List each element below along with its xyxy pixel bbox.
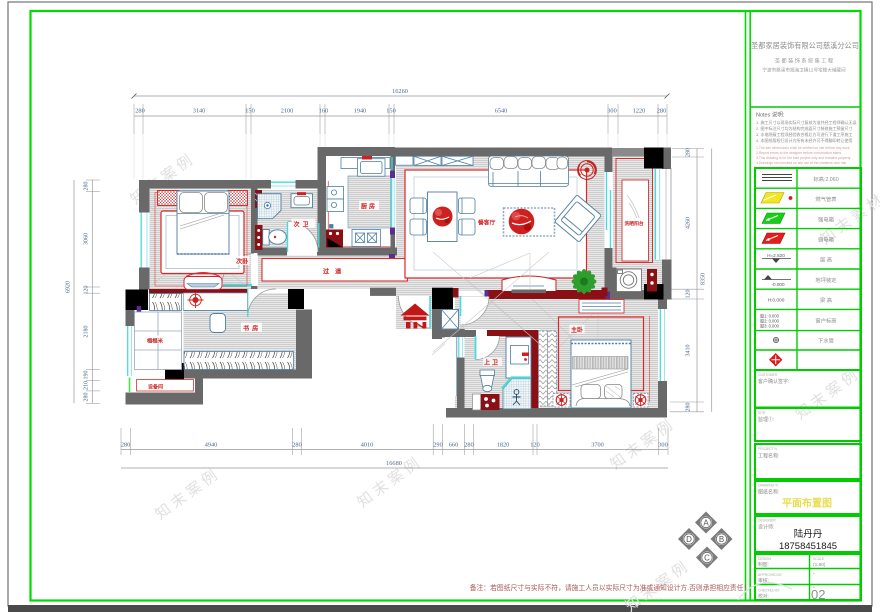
svg-text:CUSTOMER: CUSTOMER — [758, 373, 778, 377]
svg-text:D: D — [686, 535, 692, 544]
svg-text:工程名称:: 工程名称: — [758, 453, 779, 460]
svg-text:餐客厅: 餐客厅 — [477, 219, 496, 227]
svg-text:H:0.000: H:0.000 — [768, 298, 785, 304]
svg-text:6540: 6540 — [495, 108, 508, 115]
svg-text:3410: 3410 — [686, 345, 692, 357]
svg-text:4. 本图纸版权归设计方所有未经许可不得翻印转让使用: 4. 本图纸版权归设计方所有未经许可不得翻印转让使用 — [756, 137, 852, 143]
svg-text:1. 施工尺寸以现场实际尺寸复核为准并经工程师确认无误: 1. 施工尺寸以现场实际尺寸复核为准并经工程师确认无误 — [756, 119, 856, 125]
svg-text:洗晒阳台: 洗晒阳台 — [625, 220, 644, 227]
svg-text:设计师:: 设计师: — [758, 524, 774, 531]
svg-text:窗户标高: 窗户标高 — [815, 317, 836, 325]
svg-text:SCALE: SCALE — [813, 557, 825, 561]
svg-text:2180: 2180 — [84, 326, 90, 338]
svg-text:150: 150 — [386, 108, 395, 115]
svg-text:2. 图中标注尺寸均为结构完成面尺寸装修施工预留尺寸: 2. 图中标注尺寸均为结构完成面尺寸装修施工预留尺寸 — [756, 125, 852, 131]
svg-text:DRAWING TI.: DRAWING TI. — [758, 484, 779, 488]
svg-text:3060: 3060 — [84, 233, 90, 245]
svg-text:1.The site dimensions shall be: 1.The site dimensions shall be verified … — [756, 146, 850, 150]
svg-text:B: B — [719, 535, 724, 544]
svg-text:16260: 16260 — [392, 88, 408, 95]
svg-text:1940: 1940 — [354, 108, 367, 115]
svg-text:2100: 2100 — [281, 108, 294, 115]
svg-text:地坪装定: 地坪装定 — [815, 276, 837, 284]
svg-text:次卧: 次卧 — [236, 258, 249, 266]
svg-text:榻榻米: 榻榻米 — [146, 337, 164, 345]
svg-text:6920: 6920 — [66, 281, 72, 293]
svg-text:APPROVED BY: APPROVED BY — [758, 573, 783, 577]
svg-text:16680: 16680 — [386, 460, 402, 467]
svg-text:4.Drawings not checked on site: 4.Drawings not checked on site are at th… — [756, 161, 846, 165]
svg-text:制图:: 制图: — [758, 561, 769, 568]
svg-text:厨房: 厨房 — [361, 203, 377, 211]
svg-text:18758451845: 18758451845 — [779, 541, 837, 552]
svg-text:DESIGNER: DESIGNER — [758, 519, 776, 523]
svg-text:280: 280 — [84, 182, 90, 191]
svg-text:A: A — [703, 519, 709, 528]
svg-text:210: 210 — [84, 381, 90, 390]
svg-text:设备间: 设备间 — [148, 384, 163, 391]
svg-text:3140: 3140 — [193, 108, 206, 115]
svg-text:660: 660 — [449, 442, 458, 449]
svg-text:300: 300 — [607, 108, 616, 115]
svg-text:燃气管表: 燃气管表 — [815, 195, 837, 203]
svg-text:300: 300 — [658, 442, 667, 449]
svg-text:陆丹丹: 陆丹丹 — [794, 528, 823, 540]
svg-text:280: 280 — [121, 442, 130, 449]
svg-text:宁波市慈溪市观海卫镇12号宅楼大储藏间: 宁波市慈溪市观海卫镇12号宅楼大储藏间 — [762, 67, 846, 74]
svg-text:SITE: SITE — [758, 411, 766, 415]
svg-text:圣 都 装 饰 系 统 集 工 程: 圣 都 装 饰 系 统 集 工 程 — [775, 57, 833, 65]
svg-text:客户确认签字:: 客户确认签字: — [758, 378, 789, 385]
svg-text:280: 280 — [686, 148, 692, 157]
svg-text:3700: 3700 — [591, 442, 604, 449]
svg-text:Notes 说明:: Notes 说明: — [756, 111, 785, 119]
svg-text:1220: 1220 — [633, 108, 646, 115]
svg-text:梁 高: 梁 高 — [820, 296, 832, 304]
svg-text:备注：若图纸尺寸与实际不符，请施工人员以实际尺寸为准或通知设: 备注：若图纸尺寸与实际不符，请施工人员以实际尺寸为准或通知设计方.否则承担相应责… — [470, 583, 751, 592]
svg-text:280: 280 — [292, 442, 301, 449]
svg-text:层 高: 层 高 — [820, 256, 832, 264]
svg-text:圣都家居装饰有限公司慈溪分公司: 圣都家居装饰有限公司慈溪分公司 — [751, 41, 859, 50]
svg-text:8350: 8350 — [701, 273, 707, 285]
svg-text:CHECKED BY: CHECKED BY — [758, 589, 781, 593]
svg-text:150: 150 — [245, 108, 254, 115]
svg-text:160: 160 — [319, 108, 328, 115]
svg-text:280: 280 — [84, 393, 90, 402]
svg-text:弱电箱: 弱电箱 — [818, 236, 835, 244]
svg-text:C: C — [704, 554, 710, 563]
svg-text:120: 120 — [686, 290, 692, 299]
svg-text:PROJECT N.: PROJECT N. — [758, 447, 778, 451]
svg-text:290: 290 — [433, 442, 442, 449]
svg-text:4010: 4010 — [361, 442, 374, 449]
svg-text:120: 120 — [530, 442, 539, 449]
svg-text:280: 280 — [135, 108, 144, 115]
svg-text:过道: 过道 — [323, 268, 347, 276]
svg-text:图纸名称:: 图纸名称: — [758, 489, 779, 496]
svg-text:4260: 4260 — [686, 217, 692, 229]
svg-text:窗3: 0.000: 窗3: 0.000 — [760, 323, 780, 329]
svg-text:上卫: 上卫 — [484, 359, 500, 367]
svg-text:监理①:: 监理①: — [758, 416, 774, 423]
svg-text:平面布置图: 平面布置图 — [782, 497, 832, 510]
svg-text:下水管: 下水管 — [818, 337, 834, 345]
svg-text:书房: 书房 — [243, 325, 261, 333]
svg-text:校对:: 校对: — [758, 593, 769, 600]
svg-text:主卧: 主卧 — [571, 326, 583, 334]
svg-text:-0.000: -0.000 — [771, 282, 784, 287]
svg-text:3.This drawing is for the said: 3.This drawing is for the said project o… — [756, 156, 851, 160]
svg-text:280: 280 — [686, 403, 692, 412]
svg-text:(1:80): (1:80) — [813, 562, 826, 568]
svg-text:120: 120 — [84, 286, 90, 295]
svg-text:次卫: 次卫 — [294, 221, 312, 229]
svg-text:280: 280 — [464, 442, 473, 449]
svg-text:DESIGN: DESIGN — [758, 557, 772, 561]
svg-text:4940: 4940 — [205, 442, 218, 449]
svg-text:强电箱: 强电箱 — [818, 216, 835, 224]
svg-text:2.Report errors to the designe: 2.Report errors to the designer before c… — [756, 151, 841, 155]
svg-text:280: 280 — [657, 108, 666, 115]
svg-text:02: 02 — [811, 587, 825, 602]
svg-text:3. 水电隐蔽工程须经验收合格后方可进行下道工序施工: 3. 水电隐蔽工程须经验收合格后方可进行下道工序施工 — [756, 131, 852, 137]
svg-text:H=2.820: H=2.820 — [767, 253, 785, 258]
svg-text:1820: 1820 — [497, 442, 510, 449]
svg-text:190: 190 — [84, 371, 90, 380]
svg-text:标高:2.060: 标高:2.060 — [813, 175, 838, 183]
